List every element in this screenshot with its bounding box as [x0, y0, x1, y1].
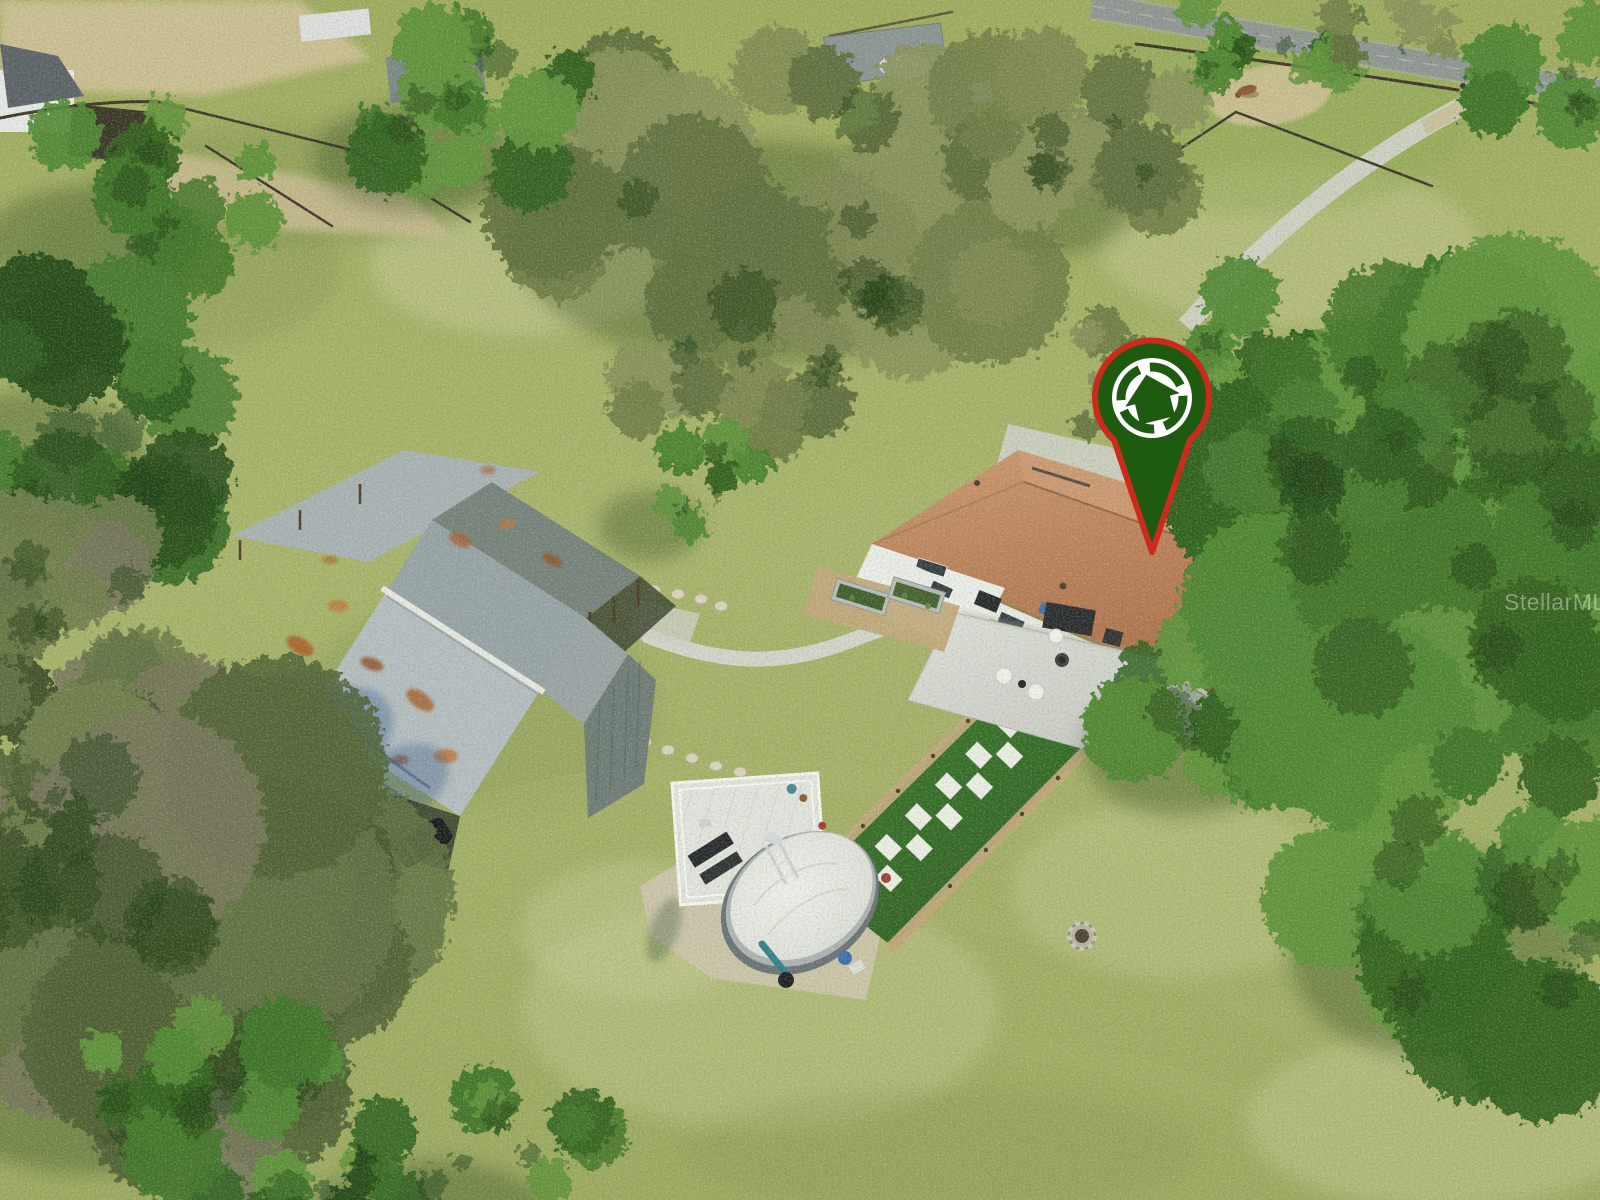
aerial-photo-stage: StellarMLS	[0, 0, 1600, 1200]
aerial-photo: StellarMLS	[0, 0, 1600, 1200]
watermark: StellarMLS	[1504, 589, 1600, 615]
photo-grain-dark	[0, 0, 1600, 1200]
